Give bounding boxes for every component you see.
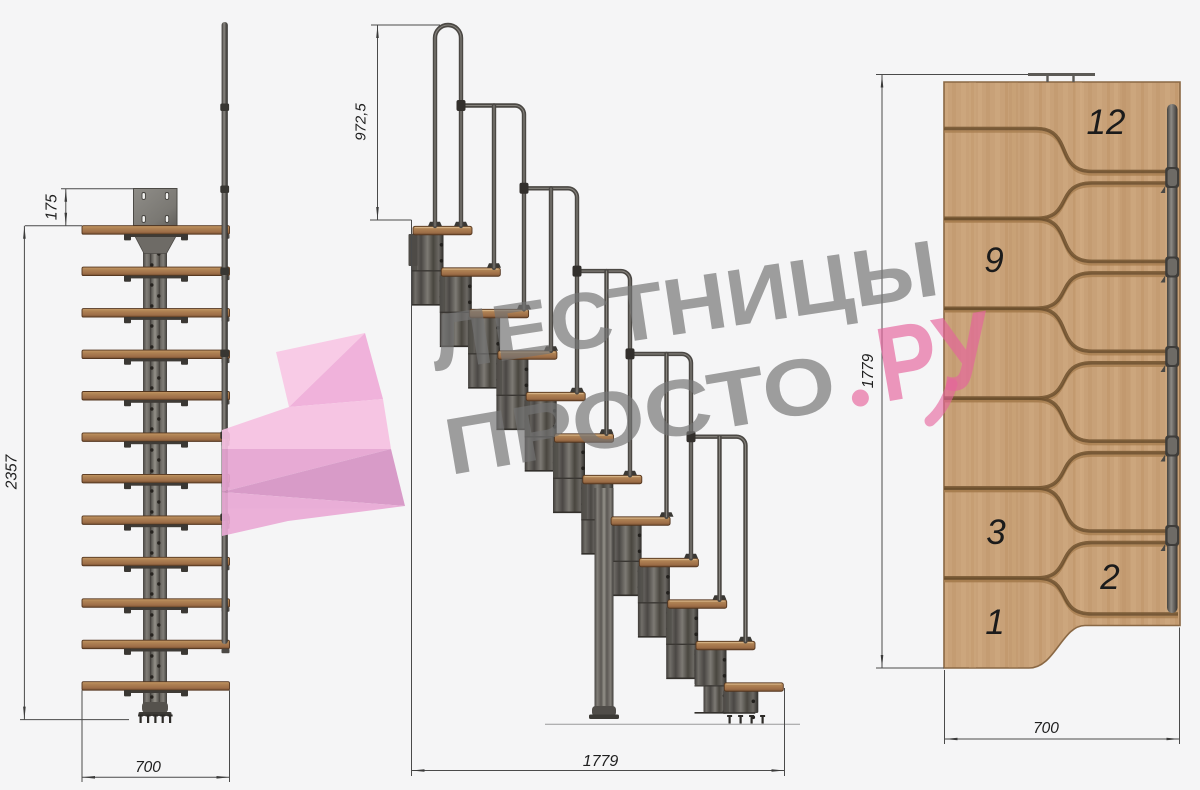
svg-text:972,5: 972,5 (353, 103, 370, 141)
svg-text:1: 1 (985, 603, 1004, 642)
svg-text:2: 2 (1099, 558, 1119, 597)
svg-text:175: 175 (44, 194, 61, 220)
svg-text:1779: 1779 (583, 753, 619, 770)
svg-text:9: 9 (984, 241, 1003, 280)
svg-text:1779: 1779 (860, 353, 877, 388)
svg-text:2357: 2357 (4, 453, 21, 490)
svg-text:12: 12 (1087, 103, 1126, 142)
svg-text:700: 700 (135, 759, 161, 776)
svg-text:3: 3 (986, 513, 1006, 552)
svg-text:РУ: РУ (868, 289, 1002, 425)
svg-text:700: 700 (1033, 720, 1059, 737)
